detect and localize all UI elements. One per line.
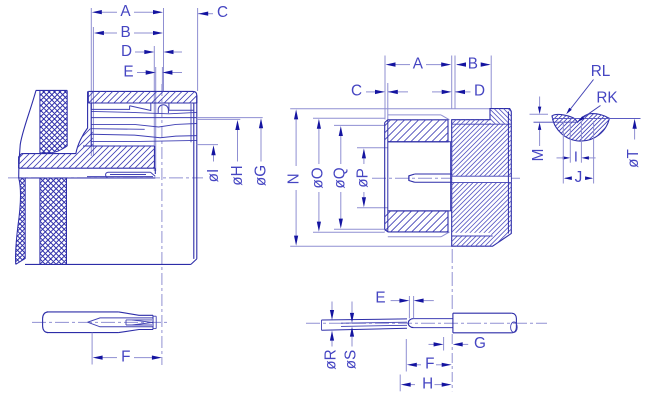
svg-text:A: A (413, 55, 424, 72)
svg-text:M: M (530, 149, 547, 162)
svg-text:øO: øO (310, 167, 327, 188)
svg-text:øI: øI (205, 169, 222, 183)
svg-text:RL: RL (591, 63, 611, 80)
svg-text:J: J (575, 169, 583, 186)
svg-text:D: D (474, 83, 485, 100)
svg-text:øH: øH (229, 165, 246, 185)
svg-text:B: B (120, 24, 130, 41)
svg-text:D: D (121, 43, 132, 60)
svg-text:A: A (120, 3, 131, 20)
svg-text:øQ: øQ (331, 167, 348, 188)
svg-text:øG: øG (253, 165, 270, 186)
svg-text:E: E (375, 289, 385, 306)
svg-text:F: F (425, 356, 434, 373)
svg-text:F: F (121, 348, 130, 365)
svg-text:E: E (123, 63, 133, 80)
svg-text:N: N (285, 173, 302, 184)
svg-text:C: C (351, 83, 362, 100)
svg-text:H: H (422, 375, 433, 392)
svg-text:G: G (474, 335, 486, 352)
svg-text:B: B (468, 55, 478, 72)
svg-text:øT: øT (625, 149, 642, 168)
svg-text:I: I (574, 150, 578, 166)
svg-text:øS: øS (343, 350, 360, 370)
svg-text:RK: RK (596, 90, 618, 107)
svg-text:øR: øR (323, 349, 340, 369)
svg-text:øP: øP (355, 168, 372, 188)
svg-text:C: C (217, 4, 228, 21)
